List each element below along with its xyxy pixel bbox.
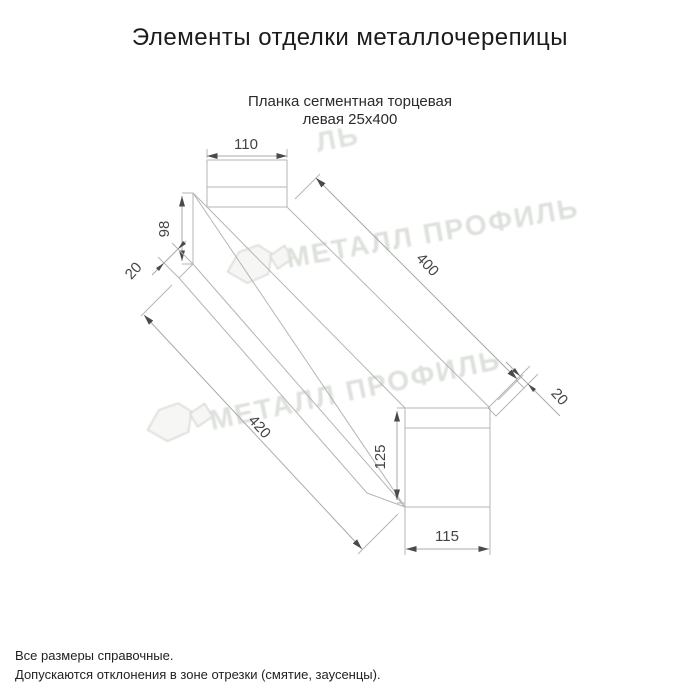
footer-notes: Все размеры справочные. Допускаются откл… — [15, 646, 381, 684]
top-flange-rect — [207, 160, 287, 207]
left-hem-fold — [179, 264, 193, 278]
left-web-corner — [193, 193, 207, 207]
footer-note-1: Все размеры справочные. — [15, 646, 381, 665]
dim-20-left-label: 20 — [122, 259, 146, 283]
dim-115-label: 115 — [435, 528, 459, 545]
right-end-rect — [405, 408, 490, 507]
catalog-page: Элементы отделки металлочерепицы Планка … — [0, 0, 700, 700]
dim-20-left-ext — [158, 243, 193, 278]
dim-110: 110 — [207, 136, 287, 158]
dim-125-label: 125 — [372, 444, 389, 469]
technical-drawing: МЕТАЛЛ ПРОФИЛЬ МЕТАЛЛ ПРОФИЛЬ ЛЬ — [0, 0, 700, 700]
watermark-row-2: МЕТАЛЛ ПРОФИЛЬ — [145, 344, 504, 444]
dim-98-ext — [182, 193, 193, 264]
dim-20-right-ext — [516, 366, 538, 388]
dim-98: 98 — [156, 193, 193, 264]
right-end-section — [405, 380, 524, 555]
dim-98-label: 98 — [156, 221, 173, 238]
dim-20-right: 20 — [506, 362, 571, 416]
right-hem-fold-quad — [488, 380, 524, 416]
watermark-row-1: МЕТАЛЛ ПРОФИЛЬ — [225, 192, 582, 286]
footer-note-2: Допускаются отклонения в зоне отрезки (с… — [15, 665, 381, 684]
dim-125-ext — [397, 408, 405, 503]
dim-115: 115 — [406, 528, 489, 549]
dim-400-label: 400 — [413, 250, 443, 280]
watermark-fragment: ЛЬ — [313, 119, 362, 158]
metall-profil-logo-icon — [145, 399, 215, 444]
dim-110-label: 110 — [234, 136, 258, 153]
dim-20-right-label: 20 — [547, 385, 571, 409]
